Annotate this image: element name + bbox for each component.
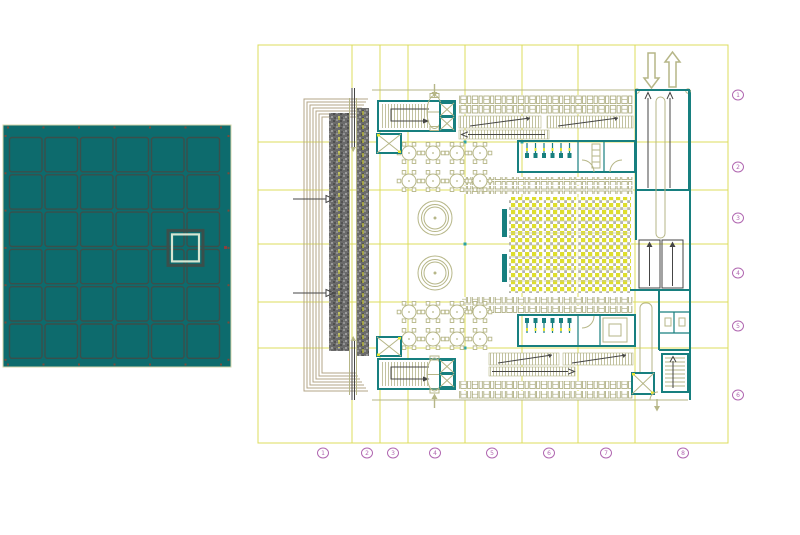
svg-text:8: 8 bbox=[681, 450, 685, 457]
page-canvas: 1 2 3 4 5 6 7 8 1 2 3 4 5 6 bbox=[0, 0, 800, 535]
circular-feature bbox=[418, 201, 452, 290]
svg-text:6: 6 bbox=[736, 392, 740, 399]
floor-plan-canvas[interactable]: 1 2 3 4 5 6 7 8 1 2 3 4 5 6 bbox=[0, 0, 800, 535]
svg-text:1: 1 bbox=[321, 450, 325, 457]
toilet-stalls bbox=[525, 143, 572, 158]
svg-text:6: 6 bbox=[547, 450, 551, 457]
svg-text:4: 4 bbox=[736, 270, 740, 277]
exit-arrow-down-icon bbox=[654, 399, 660, 412]
ramp-down-arrow-icon bbox=[644, 53, 659, 88]
wc-fixture bbox=[665, 318, 671, 326]
svg-text:3: 3 bbox=[391, 450, 395, 457]
wc-fixture bbox=[679, 318, 685, 326]
rooms-northeast bbox=[518, 141, 635, 172]
svg-text:5: 5 bbox=[736, 323, 740, 330]
svg-text:5: 5 bbox=[490, 450, 494, 457]
entry-arrow-down-icon bbox=[432, 84, 438, 98]
grid-bubble-bottom-5: 5 bbox=[487, 448, 498, 458]
door-swing bbox=[610, 160, 622, 172]
grid-bubble-right-2: 2 bbox=[733, 162, 744, 172]
grid-bubble-right-3: 3 bbox=[733, 213, 744, 223]
grid-bubble-right-4: 4 bbox=[733, 268, 744, 278]
grid-bubble-bottom-8: 8 bbox=[678, 448, 689, 458]
toilet-stalls bbox=[525, 318, 572, 333]
auditorium-seating bbox=[502, 197, 631, 293]
grid-bubble-right-5: 5 bbox=[733, 321, 744, 331]
auditorium-door bbox=[502, 254, 507, 282]
grid-bubble-bottom-3: 3 bbox=[388, 448, 399, 458]
section-arrow-down-icon bbox=[351, 147, 357, 152]
grid-bubble-right-6: 6 bbox=[733, 390, 744, 400]
corner-southeast bbox=[632, 290, 690, 412]
svg-text:4: 4 bbox=[433, 450, 437, 457]
svg-text:7: 7 bbox=[604, 450, 608, 457]
grid-bubble-bottom-1: 1 bbox=[318, 448, 329, 458]
reading-tables bbox=[397, 143, 492, 350]
grid-bubble-bottom-6: 6 bbox=[544, 448, 555, 458]
entry-arrow-up-icon bbox=[432, 394, 438, 409]
grid-bubble-bottom-4: 4 bbox=[430, 448, 441, 458]
hatched-ramp-strip bbox=[329, 88, 369, 400]
grid-bubble-right-1: 1 bbox=[733, 90, 744, 100]
ramp-up-arrow-icon bbox=[665, 52, 680, 87]
svg-text:2: 2 bbox=[736, 164, 740, 171]
section-arrow-up-icon bbox=[351, 336, 357, 341]
grid-bubble-bottom-2: 2 bbox=[362, 448, 373, 458]
grid-bubble-bottom-7: 7 bbox=[601, 448, 612, 458]
svg-text:1: 1 bbox=[736, 92, 740, 99]
east-ramp bbox=[630, 90, 690, 290]
rooms-southeast bbox=[518, 315, 635, 346]
auditorium-door bbox=[502, 209, 507, 237]
svg-text:2: 2 bbox=[365, 450, 369, 457]
circulation-arrows bbox=[644, 52, 680, 88]
dumbwaiter bbox=[603, 318, 627, 342]
svg-text:3: 3 bbox=[736, 215, 740, 222]
door-swing bbox=[582, 316, 594, 328]
